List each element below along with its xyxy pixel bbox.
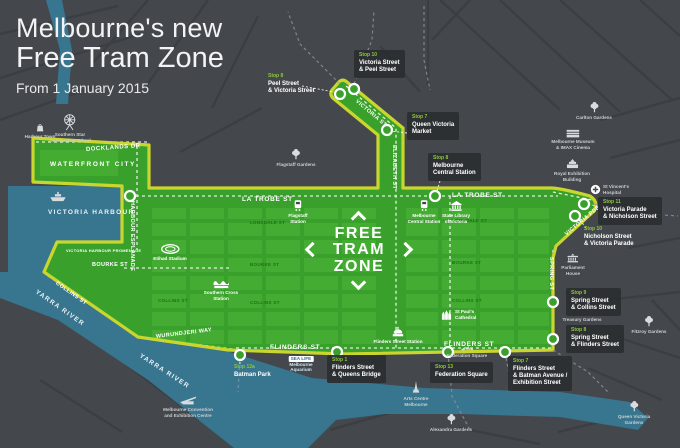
hospital-icon bbox=[590, 184, 601, 195]
landmark-label: Southern StarObservation Wheel bbox=[49, 132, 91, 143]
landmark: Melbourne Museum& IMAX Cinema bbox=[551, 128, 594, 150]
landmark-label-line: Melbourne bbox=[403, 402, 428, 408]
landmark-label-line: Station bbox=[204, 296, 238, 302]
train-icon bbox=[288, 199, 307, 212]
landmark-label-line: Melbourne bbox=[408, 213, 441, 219]
landmark-label: Alexandra Gardens bbox=[430, 427, 472, 433]
landmark-label: MelbourneCentral Station bbox=[408, 213, 441, 224]
stop-name-line: Central Station bbox=[433, 170, 476, 177]
landmark-label: Etihad Stadium bbox=[153, 256, 186, 262]
stop-number: Stop 7 bbox=[412, 115, 454, 121]
landmark: SEA LIFEMelbourneAquarium bbox=[289, 356, 314, 373]
stop-number: Stop 8 bbox=[268, 74, 315, 80]
landmark-label: Carlton Gardens bbox=[576, 115, 612, 121]
landmark bbox=[50, 191, 67, 203]
landmark: Etihad Stadium bbox=[153, 243, 186, 262]
street-label: LA TROBE ST bbox=[242, 196, 293, 203]
landmark-label-line: Gardens bbox=[618, 420, 650, 426]
landmark-label: FlagstaffStation bbox=[288, 213, 307, 224]
landmark: Southern CrossStation bbox=[204, 278, 238, 301]
stop-name-line: & Nicholson Street bbox=[603, 214, 657, 221]
landmark: MelbourneCentral Station bbox=[408, 199, 441, 224]
stop-label: Stop 11Victoria Parade& Nicholson Street bbox=[598, 197, 662, 225]
columns-icon bbox=[442, 199, 470, 212]
fedsq-icon bbox=[447, 343, 487, 352]
spire-icon bbox=[403, 380, 428, 395]
logo-line: ZONE bbox=[322, 259, 396, 275]
landmark-label-line: Parliament bbox=[561, 265, 585, 271]
stop-name-line: Melbourne bbox=[433, 163, 476, 170]
landmark-label-line: St Paul's bbox=[455, 309, 476, 315]
street-label: WURUNDJERI WAY bbox=[156, 327, 213, 340]
landmark-label-line: Flagstaff bbox=[288, 213, 307, 219]
stop-name-line: Peel Street bbox=[268, 81, 315, 88]
landmark-label-line: Flinders Street Station bbox=[373, 339, 422, 345]
landmark: Carlton Gardens bbox=[576, 101, 612, 121]
title-line1: Melbourne's new bbox=[16, 14, 224, 43]
landmark-label-line: Alexandra Gardens bbox=[430, 427, 472, 433]
stop-name-line: Queen Victoria bbox=[412, 122, 454, 129]
logo-line: FREE bbox=[322, 226, 396, 242]
landmark: Flagstaff Gardens bbox=[276, 148, 315, 168]
landmark-label-line: House bbox=[561, 271, 585, 277]
landmark: FlagstaffStation bbox=[288, 199, 307, 224]
landmark-label: St Paul'sCathedral bbox=[455, 309, 476, 320]
street-label: COLLINS ST bbox=[158, 298, 188, 303]
landmark-label-line: Federation Square bbox=[447, 353, 487, 359]
street-label: COLLINS ST bbox=[250, 300, 280, 305]
title-subtitle: From 1 January 2015 bbox=[16, 81, 224, 96]
landmark: Federation Square bbox=[447, 343, 487, 359]
stop-name-line: & Victoria Parade bbox=[584, 241, 634, 248]
stop-label: Stop 8Peel Street& Victoria Street bbox=[268, 74, 315, 95]
stop-number: Stop 7 bbox=[513, 359, 567, 365]
street-label: DOCKLANDS DR bbox=[86, 143, 141, 153]
tree-icon bbox=[576, 101, 612, 114]
stop-number: Stop 8 bbox=[571, 328, 619, 334]
museum-icon bbox=[551, 128, 594, 138]
landmark-label-line: and Exhibition Centre bbox=[163, 413, 213, 419]
stop-name-line: Victoria Parade bbox=[603, 207, 657, 214]
landmark: Melbourne Conventionand Exhibition Centr… bbox=[163, 395, 213, 418]
stop-number: Stop 1 bbox=[332, 358, 381, 364]
landmark: St Paul'sCathedral bbox=[440, 308, 476, 321]
landmark-label-line: Etihad Stadium bbox=[153, 256, 186, 262]
street-label: LA TROBE ST bbox=[452, 192, 503, 199]
stop-name-line: Market bbox=[412, 129, 454, 136]
landmark-label-line: Fitzroy Gardens bbox=[632, 329, 667, 335]
stop-name-line: & Victoria Street bbox=[268, 88, 315, 95]
tree-icon bbox=[276, 148, 315, 161]
tree-icon bbox=[618, 400, 650, 413]
stop-label: Stop 7Queen VictoriaMarket bbox=[407, 112, 459, 140]
stop-label: Stop 10Victoria Street& Peel Street bbox=[354, 50, 405, 78]
landmark-label: Melbourne Conventionand Exhibition Centr… bbox=[163, 407, 213, 418]
landmark: Southern StarObservation Wheel bbox=[49, 112, 91, 143]
landmark-label-line: Flagstaff Gardens bbox=[276, 162, 315, 168]
stop-label: Stop 9Spring Street& Collins Street bbox=[566, 288, 621, 316]
landmark-label: SEA LIFEMelbourneAquarium bbox=[289, 356, 314, 373]
stop-name-line: & Peel Street bbox=[359, 67, 400, 74]
stop-name-line: & Batman Avenue / bbox=[513, 373, 567, 380]
dome-icon bbox=[373, 325, 422, 338]
landmark-label-line: St Vincent's bbox=[603, 184, 629, 190]
landmark-label-line: Aquarium bbox=[289, 367, 314, 373]
stop-name-line: Flinders Street bbox=[513, 366, 567, 373]
landmark-label-line: Arts Centre bbox=[403, 396, 428, 402]
stop-name-line: Spring Street bbox=[571, 298, 616, 305]
landmark-label: Melbourne Museum& IMAX Cinema bbox=[551, 139, 594, 150]
stop-label: Stop 13Federation Square bbox=[430, 362, 493, 383]
parliament-icon bbox=[561, 251, 585, 264]
stop-name-line: Victoria Street bbox=[359, 60, 400, 67]
stop-label: Stop 8MelbourneCentral Station bbox=[428, 153, 481, 181]
logo-line: TRAM bbox=[322, 242, 396, 258]
landmark-label-line: Hospital bbox=[603, 190, 629, 196]
landmark-label: Arts CentreMelbourne bbox=[403, 396, 428, 407]
landmark-label-line: Southern Star bbox=[49, 132, 91, 138]
stop-number: Stop 10 bbox=[584, 227, 634, 233]
landmark-label-line: Station bbox=[288, 219, 307, 225]
street-label: BOURKE ST bbox=[452, 260, 481, 265]
landmark-label-line: Melbourne Convention bbox=[163, 407, 213, 413]
stop-name-line: Nicholson Street bbox=[584, 234, 634, 241]
stop-name-line: Federation Square bbox=[435, 372, 488, 379]
stop-number: Stop 10 bbox=[359, 53, 400, 59]
landmark: ParliamentHouse bbox=[561, 251, 585, 276]
landmark: State Libraryof Victoria bbox=[442, 199, 470, 224]
convention-icon bbox=[163, 395, 213, 406]
title-line2: Free Tram Zone bbox=[16, 43, 224, 74]
landmark-label: ParliamentHouse bbox=[561, 265, 585, 276]
landmark-label: Queen VictoriaGardens bbox=[618, 414, 650, 425]
stop-label: Stop 8Spring Street& Flinders Street bbox=[566, 325, 624, 353]
poster-title: Melbourne's new Free Tram Zone From 1 Ja… bbox=[16, 14, 224, 97]
street-label: VICTORIA HARBOUR bbox=[48, 209, 135, 216]
stop-number: Stop 13 bbox=[435, 365, 488, 371]
landmark: Arts CentreMelbourne bbox=[403, 380, 428, 407]
landmark-label-line: State Library bbox=[442, 213, 470, 219]
street-label: SPRING ST bbox=[548, 257, 554, 290]
landmark-label: Fitzroy Gardens bbox=[632, 329, 667, 335]
stop-name-line: Exhibition Street bbox=[513, 380, 567, 387]
landmark-label-line: Melbourne Museum bbox=[551, 139, 594, 145]
tree-icon bbox=[430, 413, 472, 426]
landmark-label-line: Central Station bbox=[408, 219, 441, 225]
landmark: St Vincent'sHospital bbox=[590, 184, 629, 195]
street-label: YARRA RIVER bbox=[138, 353, 191, 391]
landmark-label: Treasury Gardens bbox=[562, 317, 601, 323]
street-label: ELIZABETH ST bbox=[391, 145, 397, 189]
street-label: BOURKE ST bbox=[92, 262, 128, 268]
landmark: Treasury Gardens bbox=[562, 317, 601, 323]
landmark-label-line: & IMAX Cinema bbox=[551, 145, 594, 151]
street-label: LONSDALE ST bbox=[250, 220, 285, 225]
landmark-label-line: Southern Cross bbox=[204, 290, 238, 296]
stop-name-line: Flinders Street bbox=[332, 365, 381, 372]
landmark-label-line: Building bbox=[554, 177, 590, 183]
stop-label: Stop 7Flinders Street& Batman Avenue /Ex… bbox=[508, 356, 572, 391]
landmark: Fitzroy Gardens bbox=[632, 315, 667, 335]
train-icon bbox=[408, 199, 441, 212]
landmark-label: Federation Square bbox=[447, 353, 487, 359]
ship-icon bbox=[50, 191, 67, 202]
free-tram-zone-map-poster: DOCKLANDS DRWATERFRONT CITYVICTORIA HARB… bbox=[0, 0, 680, 448]
stop-label: Stop 10Nicholson Street& Victoria Parade bbox=[584, 227, 634, 248]
stop-name-line: Spring Street bbox=[571, 335, 619, 342]
landmark-label: Royal ExhibitionBuilding bbox=[554, 171, 590, 182]
stop-name-line: & Queens Bridge bbox=[332, 372, 381, 379]
stadium-icon bbox=[153, 243, 186, 255]
landmark-label: Flagstaff Gardens bbox=[276, 162, 315, 168]
landmark: Queen VictoriaGardens bbox=[618, 400, 650, 425]
stop-name-line: & Collins Street bbox=[571, 305, 616, 312]
landmark: Royal ExhibitionBuilding bbox=[554, 157, 590, 182]
exhibition-icon bbox=[554, 157, 590, 170]
stop-name-line: Batman Park bbox=[234, 372, 271, 379]
street-label: COLLINS ST bbox=[452, 298, 482, 303]
cathedral-icon bbox=[440, 308, 453, 321]
street-label: HARBOUR ESPLANADE bbox=[129, 201, 135, 271]
stop-number: Stop 9 bbox=[571, 291, 616, 297]
free-tram-zone-logo: FREE TRAM ZONE bbox=[322, 226, 396, 275]
street-label: VICTORIA ST bbox=[354, 99, 388, 129]
stop-number: Stop 8 bbox=[433, 156, 476, 162]
landmark-label-line: Treasury Gardens bbox=[562, 317, 601, 323]
landmark-label-line: Carlton Gardens bbox=[576, 115, 612, 121]
landmark-label: St Vincent'sHospital bbox=[603, 184, 629, 195]
landmark: Alexandra Gardens bbox=[430, 413, 472, 433]
street-label: BOURKE ST bbox=[250, 262, 279, 267]
tree-icon bbox=[632, 315, 667, 328]
ferris-wheel-icon bbox=[49, 112, 91, 131]
landmark-label-line: Cathedral bbox=[455, 315, 476, 321]
stop-number: Stop 11 bbox=[603, 200, 657, 206]
landmark-label: Southern CrossStation bbox=[204, 290, 238, 301]
landmark-label: Flinders Street Station bbox=[373, 339, 422, 345]
landmark-label-line: Royal Exhibition bbox=[554, 171, 590, 177]
landmark: Flinders Street Station bbox=[373, 325, 422, 345]
landmark-label-line: Queen Victoria bbox=[618, 414, 650, 420]
street-label: VICTORIA HARBOUR PROMENADE bbox=[66, 248, 141, 253]
station-icon bbox=[204, 278, 238, 289]
landmark-label-line: SEA LIFE bbox=[289, 356, 314, 362]
stop-name-line: & Flinders Street bbox=[571, 342, 619, 349]
street-label: FLINDERS ST bbox=[270, 344, 320, 351]
stop-label: Stop 12aBatman Park bbox=[234, 365, 271, 379]
landmark-label: State Libraryof Victoria bbox=[442, 213, 470, 224]
landmark-label-line: of Victoria bbox=[442, 219, 470, 225]
street-label: WATERFRONT CITY bbox=[50, 161, 136, 168]
stop-number: Stop 12a bbox=[234, 365, 271, 371]
stop-label: Stop 1Flinders Street& Queens Bridge bbox=[327, 355, 386, 383]
landmark-label-line: Observation Wheel bbox=[49, 138, 91, 144]
